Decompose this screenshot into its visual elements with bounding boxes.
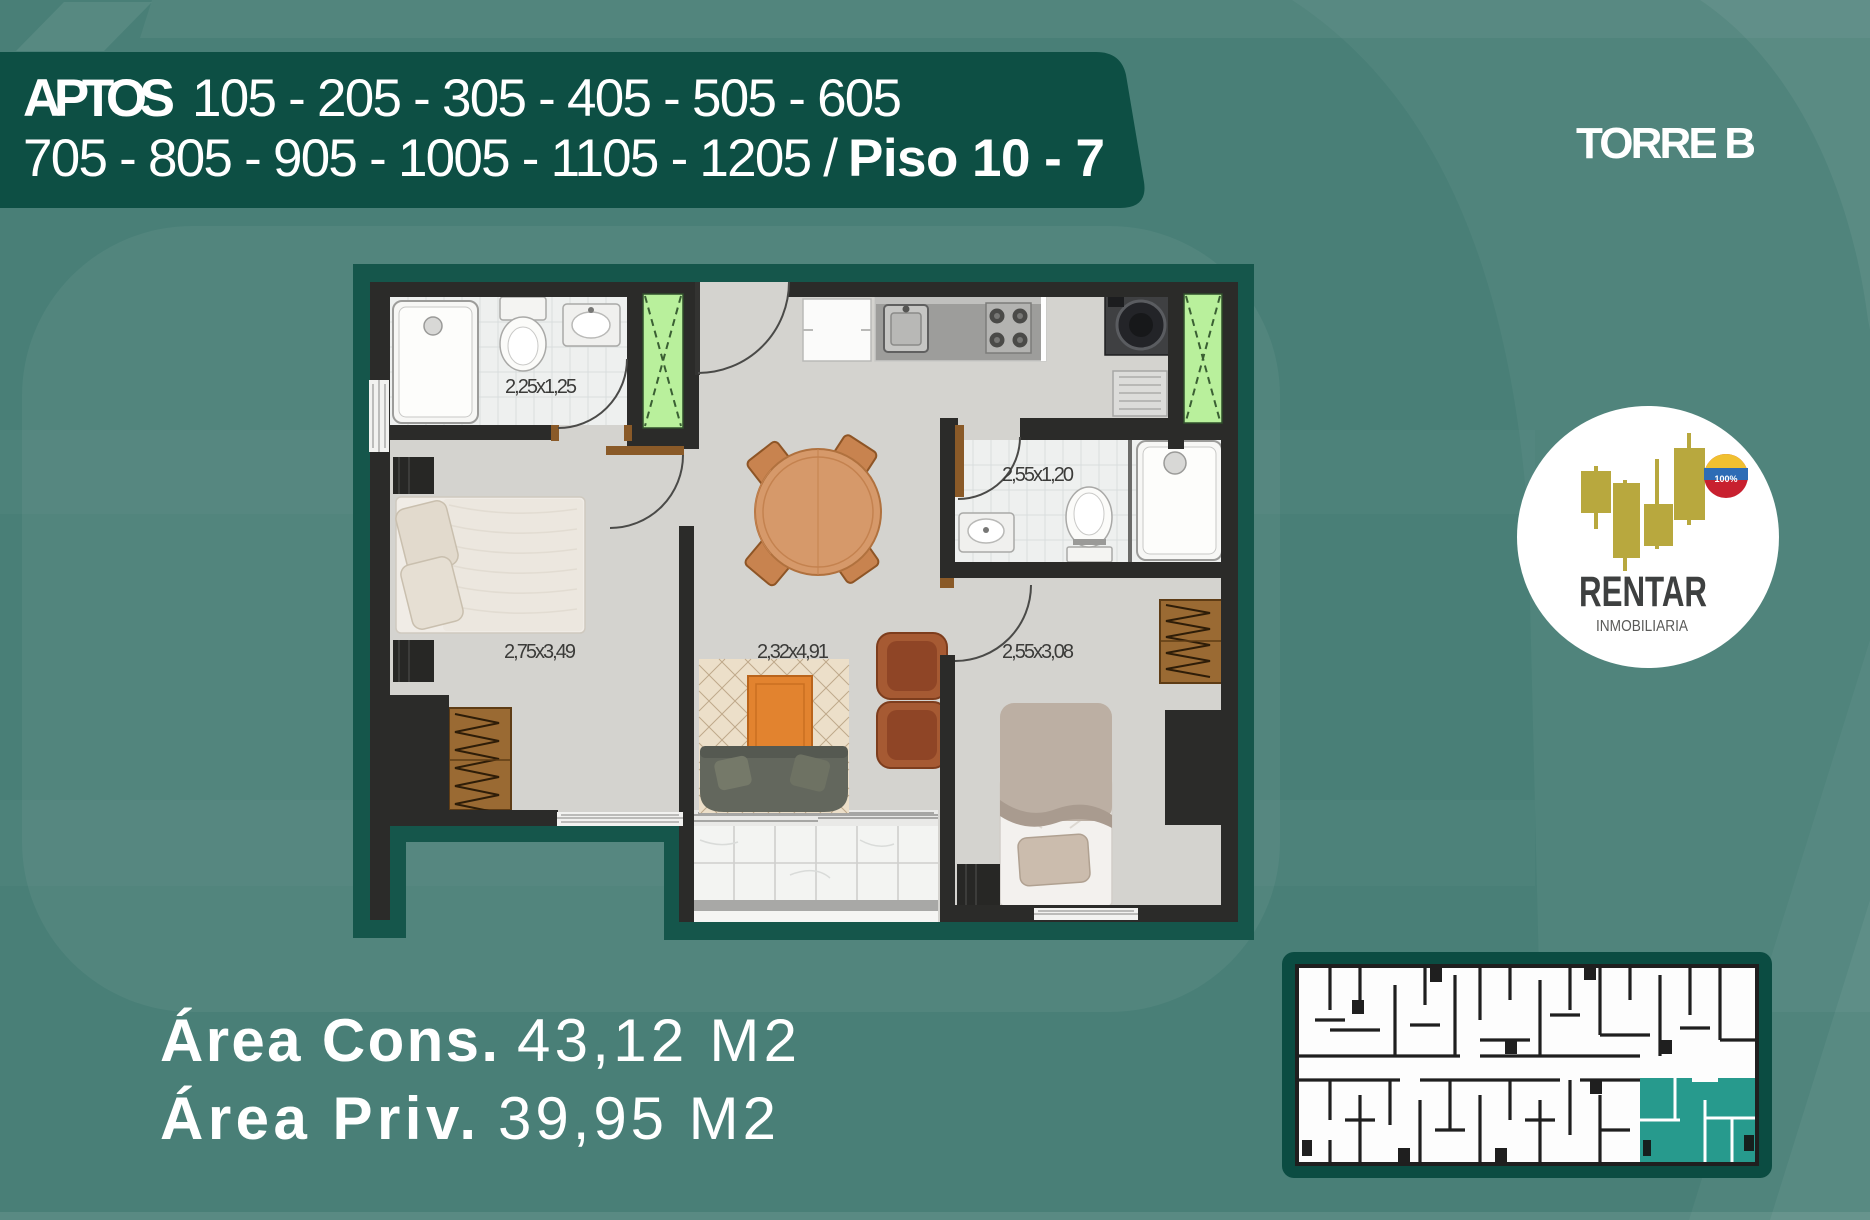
- svg-text:39,95 M2: 39,95 M2: [498, 1085, 776, 1152]
- svg-text:Área Priv.: Área Priv.: [160, 1085, 476, 1152]
- svg-text:105 - 205 - 305 - 405 - 505 -: 105 - 205 - 305 - 405 - 505 - 605: [192, 69, 902, 128]
- svg-text:2,32x4,91: 2,32x4,91: [757, 641, 829, 663]
- svg-text:TORRE B: TORRE B: [1576, 119, 1756, 168]
- svg-text:APTOS: APTOS: [23, 69, 175, 128]
- svg-text:INMOBILIARIA: INMOBILIARIA: [1596, 618, 1688, 635]
- svg-text:RENTAR: RENTAR: [1579, 568, 1707, 616]
- svg-text:2,25x1,25: 2,25x1,25: [505, 376, 577, 398]
- svg-text:705 - 805 - 905 - 1005 - 1105: 705 - 805 - 905 - 1005 - 1105 - 1205 /: [23, 129, 838, 188]
- svg-text:Piso 10 - 7: Piso 10 - 7: [848, 129, 1105, 188]
- svg-text:Área Cons.: Área Cons.: [160, 1007, 498, 1074]
- svg-text:43,12 M2: 43,12 M2: [517, 1007, 797, 1074]
- svg-text:2,75x3,49: 2,75x3,49: [504, 641, 576, 663]
- svg-text:100%: 100%: [1714, 474, 1737, 484]
- svg-text:2,55x3,08: 2,55x3,08: [1002, 641, 1074, 663]
- svg-text:2,55x1,20: 2,55x1,20: [1002, 464, 1074, 486]
